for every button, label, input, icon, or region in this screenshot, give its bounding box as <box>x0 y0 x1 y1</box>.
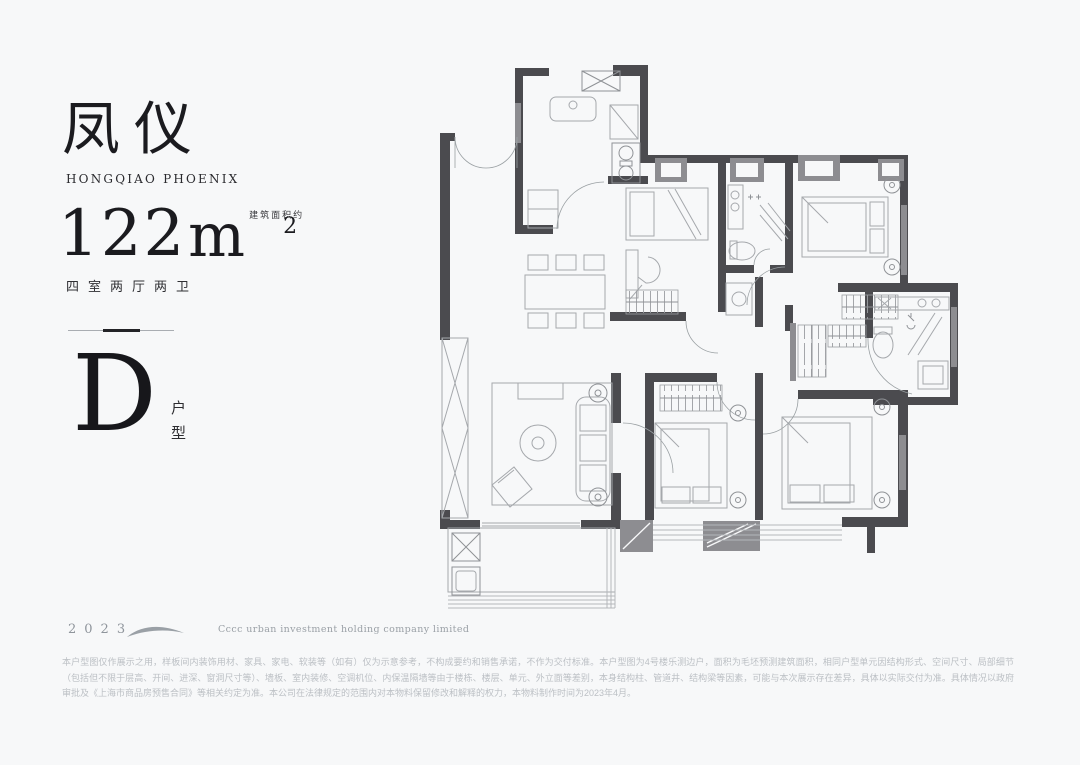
project-subtitle: HONGQIAO PHOENIX <box>66 172 239 186</box>
disclaimer-text: 本户型图仅作展示之用，样板间内装饰用材、家具、家电、软装等（如有）仅为示意参考，… <box>62 655 1014 702</box>
bedroom-small <box>626 188 718 353</box>
bedroom-three <box>763 399 890 509</box>
divider <box>68 330 174 331</box>
area-value: 122 <box>58 205 186 264</box>
area-figure: 122m 建筑面积约 2 <box>58 198 304 264</box>
unit-letter: D <box>72 338 157 449</box>
area-unit: m <box>188 209 245 264</box>
dining-set <box>525 255 605 328</box>
project-title: 凤仪 <box>62 100 206 158</box>
unit-label: 户型 <box>167 400 188 450</box>
entry-door <box>455 137 517 168</box>
floor-plan <box>430 55 970 625</box>
living-room <box>442 338 673 518</box>
swoosh-icon <box>126 624 188 640</box>
kitchen <box>528 71 640 229</box>
footer-company: Cccc urban investment holding company li… <box>218 624 469 635</box>
footer-year: 2023 <box>68 622 133 637</box>
area-superscript: 2 <box>283 216 297 238</box>
unit-type: D 户型 <box>72 338 188 450</box>
layout-description: 四室两厅两卫 <box>66 276 198 295</box>
bedroom-two <box>655 382 755 508</box>
page: 凤仪 HONGQIAO PHOENIX 122m 建筑面积约 2 四室两厅两卫 … <box>0 0 1080 765</box>
bedroom-master <box>747 177 900 377</box>
